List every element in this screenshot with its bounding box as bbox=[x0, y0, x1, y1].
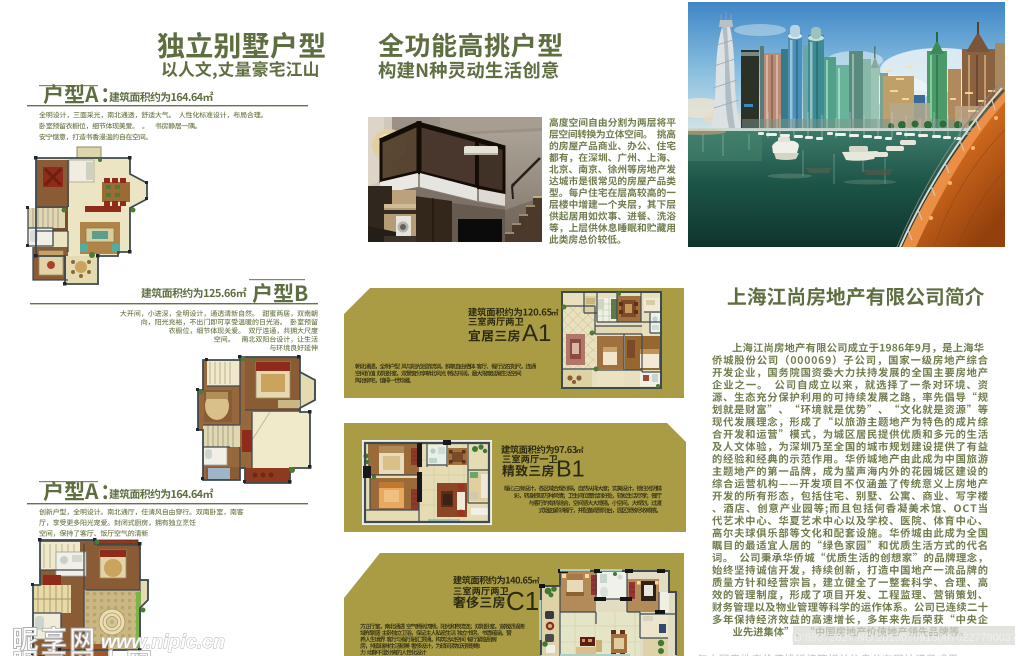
svg-text:A1: A1 bbox=[522, 320, 551, 347]
svg-text:C1: C1 bbox=[506, 586, 539, 616]
svg-text:www.nipic.cn: www.nipic.cn bbox=[101, 631, 225, 653]
svg-text:ID:59372827 NO:201307091508702: ID:59372827 NO:20130709150870227790037 bbox=[791, 632, 1017, 644]
svg-text:B1: B1 bbox=[556, 456, 585, 482]
